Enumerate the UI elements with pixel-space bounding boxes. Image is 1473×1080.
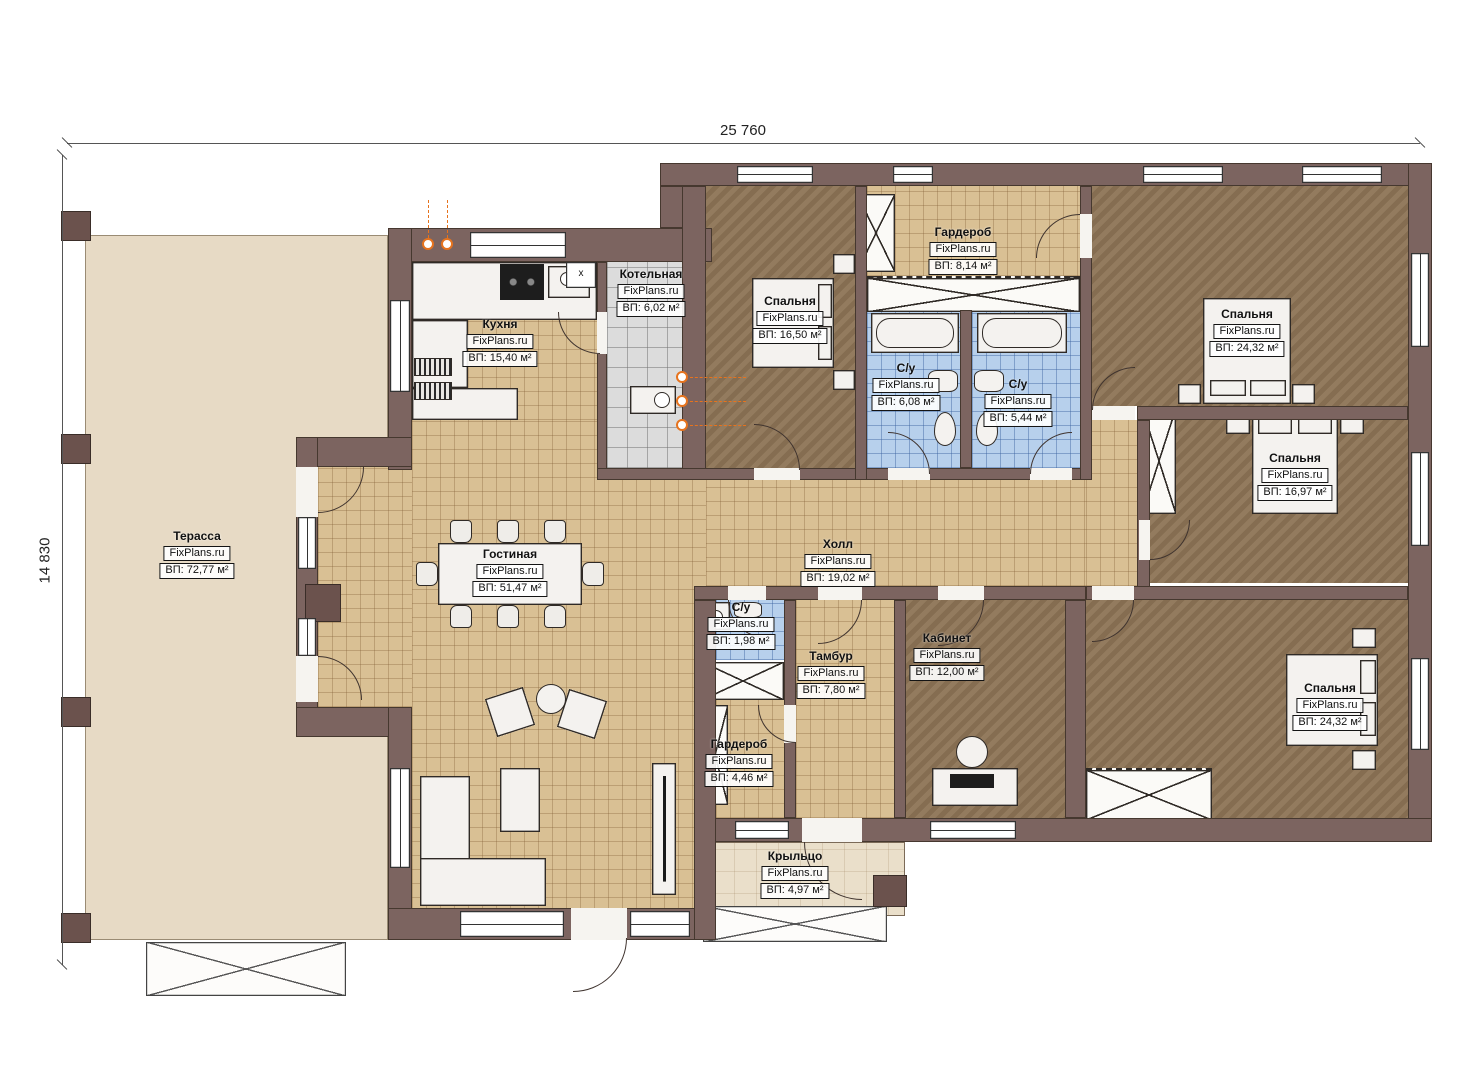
radiator-pipe <box>428 200 429 238</box>
room-label-bathroom1: С/у FixPlans.ru ВП: 6,08 м² <box>871 362 940 411</box>
wall <box>597 262 607 480</box>
door-opening <box>818 586 862 600</box>
bay-pillar <box>306 585 340 621</box>
radiator-pipe <box>690 425 746 426</box>
window <box>893 166 933 183</box>
brand-watermark: FixPlans.ru <box>929 242 996 258</box>
brand-watermark: FixPlans.ru <box>913 648 980 664</box>
door-opening <box>1139 520 1150 560</box>
brand-watermark: FixPlans.ru <box>804 554 871 570</box>
room-label-living-room: Гостиная FixPlans.ru ВП: 51,47 м² <box>472 548 547 597</box>
window <box>1302 166 1382 183</box>
door-opening <box>938 586 984 600</box>
brand-watermark: FixPlans.ru <box>797 666 864 682</box>
radiator-icon <box>676 419 688 431</box>
room-label-bedroom2: Спальня FixPlans.ru ВП: 24,32 м² <box>1209 308 1284 357</box>
room-label-office: Кабинет FixPlans.ru ВП: 12,00 м² <box>909 632 984 681</box>
chair <box>497 520 519 543</box>
wall <box>1137 406 1408 420</box>
brand-watermark: FixPlans.ru <box>617 284 684 300</box>
round-table <box>536 684 566 714</box>
room-label-bedroom3: Спальня FixPlans.ru ВП: 16,97 м² <box>1257 452 1332 501</box>
window <box>630 911 690 937</box>
room-name: Спальня <box>1292 682 1367 696</box>
nightstand <box>833 370 855 390</box>
room-label-hall: Холл FixPlans.ru ВП: 19,02 м² <box>800 538 875 587</box>
room-area: ВП: 24,32 м² <box>1209 341 1284 357</box>
brand-watermark: FixPlans.ru <box>476 564 543 580</box>
window <box>298 517 316 569</box>
window <box>1411 452 1429 546</box>
chair <box>450 605 472 628</box>
room-area: ВП: 12,00 м² <box>909 665 984 681</box>
room-name: Гостиная <box>472 548 547 562</box>
room-label-bedroom4: Спальня FixPlans.ru ВП: 24,32 м² <box>1292 682 1367 731</box>
toilet <box>934 412 956 446</box>
room-label-small-wardrobe: Гардероб FixPlans.ru ВП: 4,46 м² <box>704 738 773 787</box>
room-label-wc: С/у FixPlans.ru ВП: 1,98 м² <box>706 601 775 650</box>
wall <box>894 600 906 818</box>
window <box>470 232 566 258</box>
hall-arm-floor <box>1086 420 1137 586</box>
bathtub <box>977 313 1067 353</box>
window <box>1411 253 1429 347</box>
wall <box>855 186 867 480</box>
wall <box>682 186 706 480</box>
room-area: ВП: 1,98 м² <box>706 634 775 650</box>
window <box>1411 658 1429 750</box>
room-label-bedroom1: Спальня FixPlans.ru ВП: 16,50 м² <box>752 295 827 344</box>
coffee-table <box>500 768 540 832</box>
brand-watermark: FixPlans.ru <box>1213 324 1280 340</box>
stove <box>500 264 544 300</box>
radiator-pipe <box>690 401 746 402</box>
room-name: Крыльцо <box>760 850 829 864</box>
chair <box>450 520 472 543</box>
wall <box>1065 600 1086 818</box>
radiator-pipe <box>447 200 448 238</box>
nightstand <box>1178 384 1201 404</box>
room-area: ВП: 6,02 м² <box>616 301 685 317</box>
room-area: ВП: 5,44 м² <box>983 411 1052 427</box>
room-label-boiler: Котельная FixPlans.ru ВП: 6,02 м² <box>616 268 685 317</box>
pillow <box>1250 380 1286 396</box>
room-label-porch: Крыльцо FixPlans.ru ВП: 4,97 м² <box>760 850 829 899</box>
room-area: ВП: 19,02 м² <box>800 571 875 587</box>
brand-watermark: FixPlans.ru <box>707 617 774 633</box>
window <box>1143 166 1223 183</box>
window <box>390 300 410 392</box>
room-name: С/у <box>871 362 940 376</box>
room-name: Холл <box>800 538 875 552</box>
door-opening <box>296 656 318 702</box>
monitor <box>950 774 994 788</box>
room-name: Гардероб <box>928 226 997 240</box>
room-label-wardrobe: Гардероб FixPlans.ru ВП: 8,14 м² <box>928 226 997 275</box>
room-name: Спальня <box>752 295 827 309</box>
room-name: Спальня <box>1209 308 1284 322</box>
pillow <box>1210 380 1246 396</box>
room-name: Гардероб <box>704 738 773 752</box>
bathtub <box>871 313 959 353</box>
chair <box>582 562 604 586</box>
window <box>735 821 789 839</box>
room-area: ВП: 16,97 м² <box>1257 485 1332 501</box>
porch-post <box>874 876 906 906</box>
room-area: ВП: 8,14 м² <box>928 259 997 275</box>
wall <box>960 310 972 468</box>
door-opening <box>802 818 862 842</box>
window <box>298 618 316 656</box>
window <box>390 768 410 868</box>
kitchen-appliance <box>414 358 452 376</box>
closet <box>1086 768 1212 820</box>
chair <box>544 605 566 628</box>
room-area: ВП: 16,50 м² <box>752 328 827 344</box>
nightstand <box>1352 628 1376 648</box>
room-area: ВП: 6,08 м² <box>871 395 940 411</box>
porch-steps <box>703 906 887 942</box>
room-area: ВП: 4,46 м² <box>704 771 773 787</box>
kitchen-appliance <box>414 382 452 400</box>
room-name: Кабинет <box>909 632 984 646</box>
pillow <box>1298 418 1332 434</box>
room-name: Спальня <box>1257 452 1332 466</box>
nightstand <box>1292 384 1315 404</box>
room-area: ВП: 51,47 м² <box>472 581 547 597</box>
wall <box>1086 586 1408 600</box>
room-label-terrace: Терасса FixPlans.ru ВП: 72,77 м² <box>159 530 234 579</box>
wall <box>597 468 1092 480</box>
pillow <box>1258 418 1292 434</box>
room-name: Терасса <box>159 530 234 544</box>
dimension-width-label: 25 760 <box>720 122 766 139</box>
room-name: Кухня <box>462 318 537 332</box>
door-opening <box>728 586 766 600</box>
dimension-line-left <box>62 155 63 965</box>
brand-watermark: FixPlans.ru <box>984 394 1051 410</box>
brand-watermark: FixPlans.ru <box>872 378 939 394</box>
nightstand <box>833 254 855 274</box>
chair <box>416 562 438 586</box>
terrace-post <box>62 435 90 463</box>
room-area: ВП: 15,40 м² <box>462 351 537 367</box>
terrace-post <box>62 914 90 942</box>
brand-watermark: FixPlans.ru <box>756 311 823 327</box>
terrace-post <box>62 212 90 240</box>
door-opening <box>571 908 627 940</box>
room-name: Котельная <box>616 268 685 282</box>
room-name: С/у <box>983 378 1052 392</box>
door-opening <box>1092 586 1134 600</box>
vent-window: x <box>566 262 596 288</box>
radiator-icon <box>422 238 434 250</box>
room-area: ВП: 24,32 м² <box>1292 715 1367 731</box>
hall-floor <box>706 480 1137 586</box>
brand-watermark: FixPlans.ru <box>1296 698 1363 714</box>
room-name: С/у <box>706 601 775 615</box>
radiator-icon <box>676 371 688 383</box>
room-area: ВП: 72,77 м² <box>159 563 234 579</box>
wall <box>660 186 684 228</box>
window <box>460 911 564 937</box>
closet <box>867 276 1080 312</box>
dimension-height-label: 14 830 <box>36 538 53 584</box>
room-label-kitchen: Кухня FixPlans.ru ВП: 15,40 м² <box>462 318 537 367</box>
sofa-chaise <box>420 858 546 906</box>
window <box>930 821 1016 839</box>
terrace-steps <box>146 942 346 996</box>
office-chair <box>956 736 988 768</box>
room-name: Тамбур <box>796 650 865 664</box>
kitchen-counter-side <box>412 320 468 388</box>
room-area: ВП: 7,80 м² <box>796 683 865 699</box>
room-label-bathroom2: С/у FixPlans.ru ВП: 5,44 м² <box>983 378 1052 427</box>
chair <box>544 520 566 543</box>
radiator-pipe <box>690 377 746 378</box>
brand-watermark: FixPlans.ru <box>466 334 533 350</box>
tv-stand <box>652 763 676 895</box>
nightstand <box>1352 750 1376 770</box>
brand-watermark: FixPlans.ru <box>705 754 772 770</box>
floor-plan: 25 760 14 830 <box>0 0 1473 1080</box>
room-area: ВП: 4,97 м² <box>760 883 829 899</box>
brand-watermark: FixPlans.ru <box>761 866 828 882</box>
wall <box>1137 420 1150 600</box>
brand-watermark: FixPlans.ru <box>163 546 230 562</box>
window <box>737 166 813 183</box>
terrace-post <box>62 698 90 726</box>
radiator-icon <box>441 238 453 250</box>
chair <box>497 605 519 628</box>
radiator-icon <box>676 395 688 407</box>
door-opening <box>296 467 318 517</box>
door-opening <box>1080 214 1092 258</box>
dimension-line-top <box>67 143 1420 144</box>
boiler-dial <box>654 392 670 408</box>
brand-watermark: FixPlans.ru <box>1261 468 1328 484</box>
room-label-vestibule: Тамбур FixPlans.ru ВП: 7,80 м² <box>796 650 865 699</box>
